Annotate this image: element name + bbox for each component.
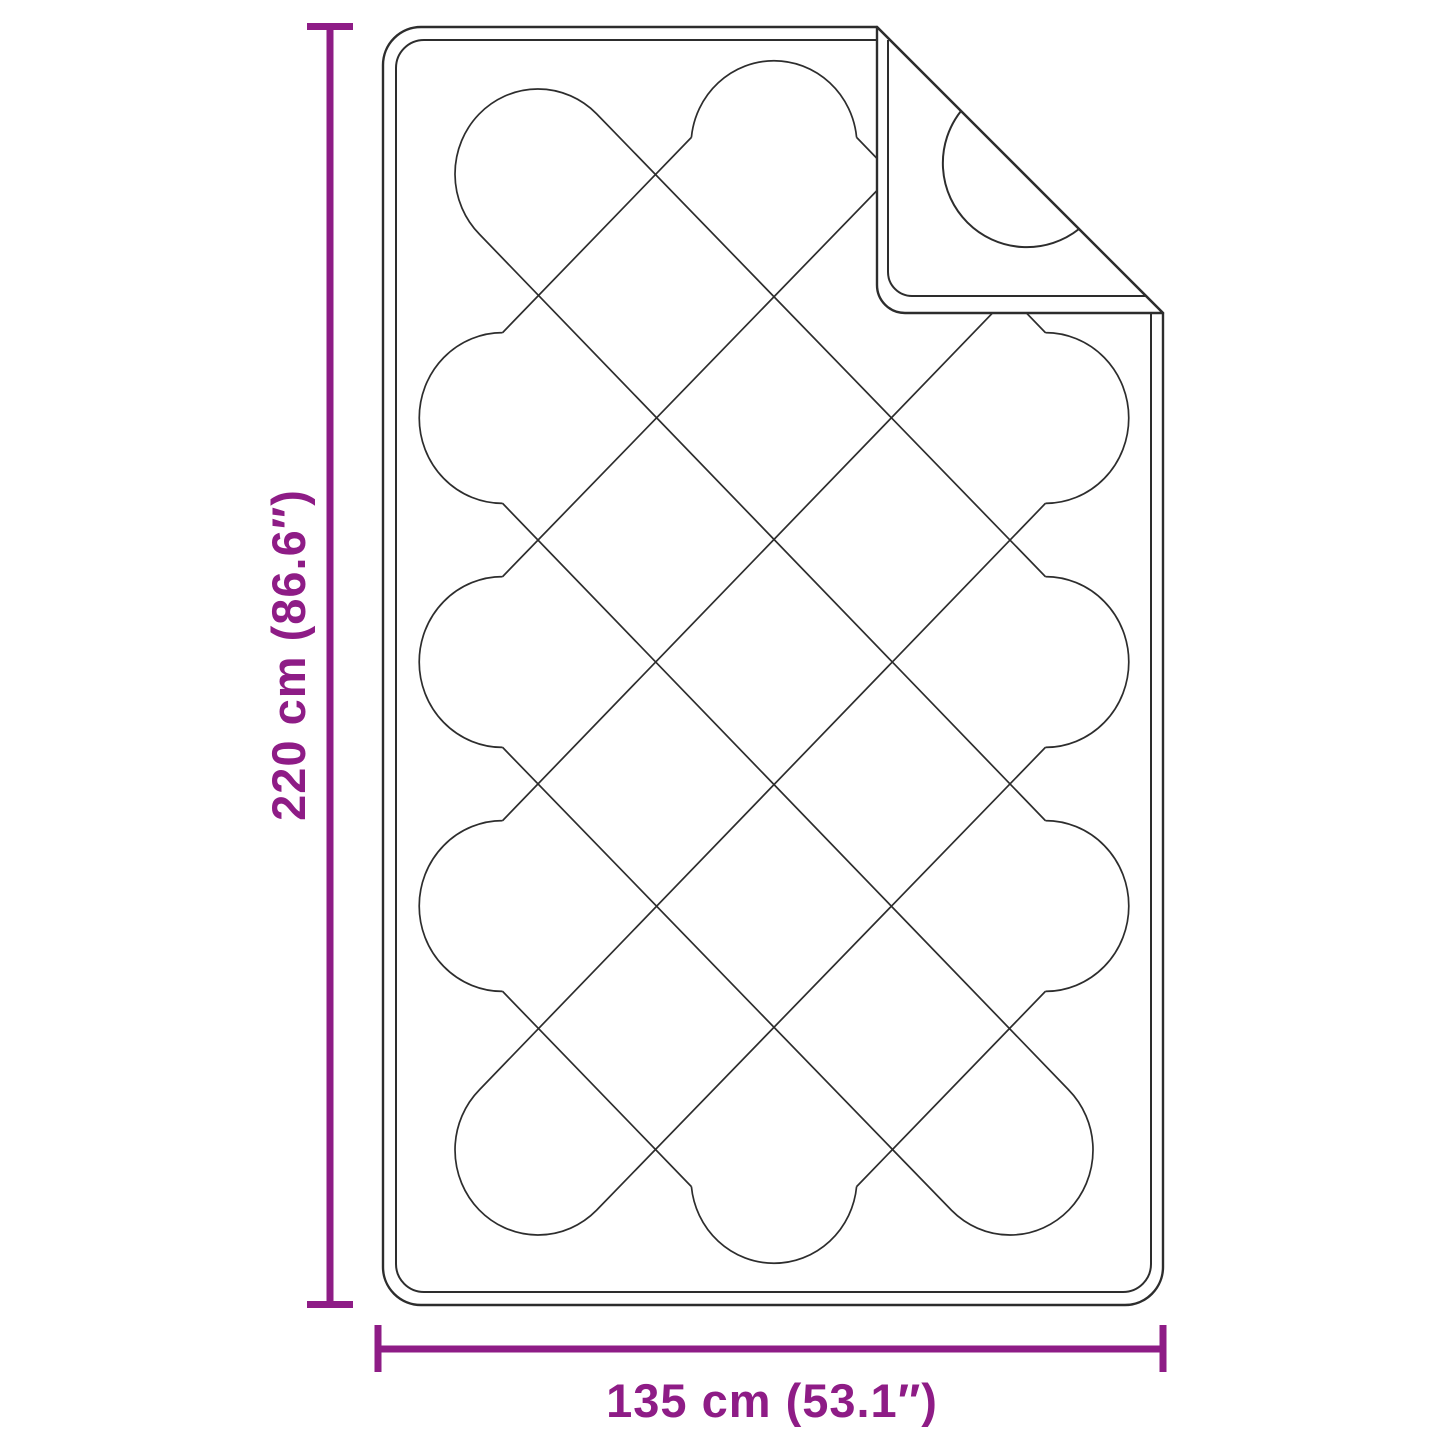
width-dimension-label: 135 cm (53.1″) bbox=[606, 1374, 938, 1427]
diagram-canvas: 220 cm (86.6″) 135 cm (53.1″) bbox=[0, 0, 1445, 1445]
width-dimension bbox=[378, 1325, 1163, 1372]
folded-corner-flap bbox=[877, 27, 1163, 313]
height-dimension-label: 220 cm (86.6″) bbox=[262, 489, 315, 821]
diagram-page: 220 cm (86.6″) 135 cm (53.1″) bbox=[0, 0, 1445, 1445]
